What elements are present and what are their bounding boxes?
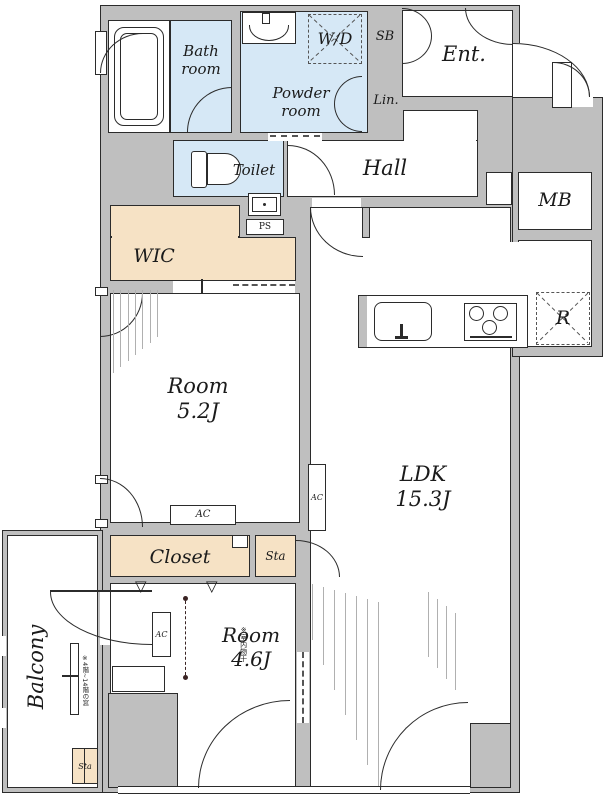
hall-join-patch	[404, 138, 476, 142]
pipe-space-box	[246, 219, 284, 235]
service-niche	[486, 172, 512, 205]
window-light-hatch	[378, 602, 379, 786]
window-light-hatch	[345, 593, 346, 715]
window-light-hatch	[446, 606, 447, 679]
window-light-hatch	[356, 596, 357, 740]
partition-window-dashes	[302, 652, 304, 723]
window-light-hatch	[334, 590, 335, 690]
floor-plan: ▽ ▽ Bath room Powder room Toilet W/D SB …	[0, 0, 606, 800]
drying-pole-end	[183, 675, 188, 680]
closet-corner-nook	[232, 535, 248, 548]
structural-block-left	[108, 693, 178, 788]
hall-door-stub-wall	[362, 207, 370, 238]
wic-sliding-door-dashes	[233, 284, 295, 286]
window-light-hatch	[437, 599, 438, 668]
kitchen-faucet-base	[395, 336, 408, 339]
structural-block-ldk	[470, 723, 511, 788]
refrigerator-x-mark	[537, 293, 588, 343]
balcony-window-symbol	[70, 643, 79, 715]
toilet-bowl	[207, 153, 241, 185]
powder-sliding-door-dashes	[270, 135, 320, 137]
window-light-hatch	[455, 613, 456, 690]
window-light-hatch	[128, 290, 129, 361]
burner	[469, 306, 484, 321]
folding-door-mark: ▽	[135, 577, 147, 595]
wic-opening	[173, 281, 295, 293]
cooktop-grill-line	[470, 336, 512, 338]
washer-dryer-x-mark	[309, 15, 360, 62]
front-door-arc-inner	[553, 62, 590, 97]
folding-door-mark: ▽	[206, 577, 218, 595]
ldk-door-opening	[312, 198, 361, 207]
ac-box-ldk	[308, 464, 326, 531]
window-light-hatch	[323, 587, 324, 665]
burner	[482, 320, 497, 335]
balcony-storage-box	[72, 748, 98, 784]
storage-sta	[255, 535, 296, 577]
closet	[110, 535, 250, 577]
balcony-window-crossbar	[62, 675, 79, 677]
drying-pole-end	[183, 596, 188, 601]
kitchen-counter-end	[359, 296, 367, 347]
ac-box-room1	[170, 505, 236, 525]
balcony-wall-gap	[2, 636, 6, 656]
washer-dryer-box	[308, 14, 362, 64]
ac-box-room2	[152, 612, 171, 657]
washbasin-faucet	[262, 13, 270, 24]
window-light-hatch	[150, 290, 151, 343]
window-light-hatch	[142, 290, 143, 349]
drying-pole-line	[185, 601, 186, 675]
wic-join-patch	[112, 233, 238, 241]
window-light-hatch	[367, 599, 368, 765]
hand-basin-drain	[263, 203, 266, 206]
burner	[493, 306, 508, 321]
window-light-hatch	[113, 290, 114, 373]
wic-lower	[110, 237, 296, 281]
room-5-2j	[110, 293, 300, 523]
wic-opening-tick	[201, 279, 203, 293]
window-light-hatch	[428, 592, 429, 657]
window-light-hatch	[135, 290, 136, 355]
window-light-hatch	[312, 584, 313, 640]
low-cabinet	[112, 666, 165, 692]
window-light-hatch	[120, 290, 121, 367]
window-light-hatch	[157, 290, 158, 337]
toilet-tank	[191, 151, 207, 188]
refrigerator-box	[536, 292, 590, 345]
balcony-storage-divider	[84, 748, 85, 784]
room-meter-box	[518, 172, 592, 230]
balcony-wall-gap	[2, 708, 6, 728]
